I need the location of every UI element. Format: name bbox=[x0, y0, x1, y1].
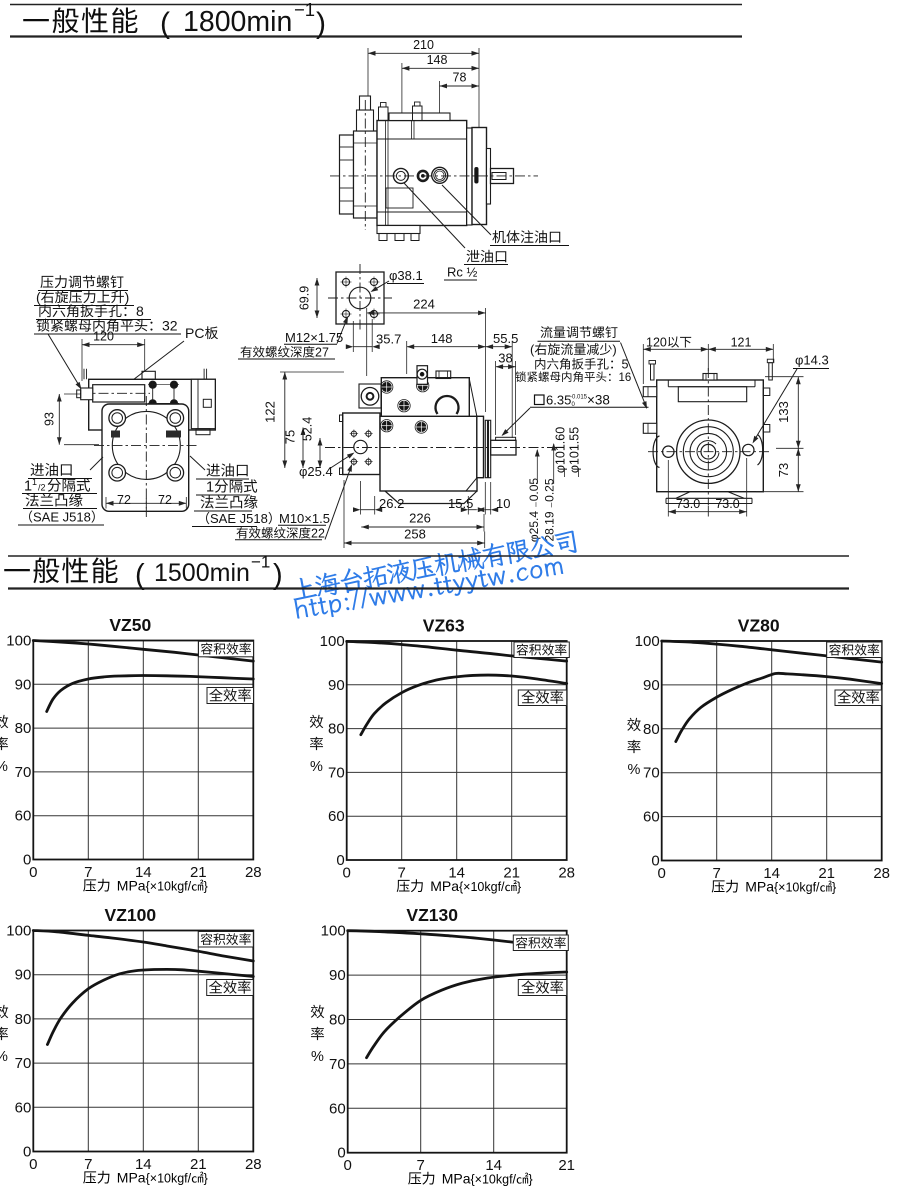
svg-text:75: 75 bbox=[283, 430, 298, 444]
svg-text:): ) bbox=[316, 7, 326, 40]
svg-text:容积效率: 容积效率 bbox=[516, 639, 567, 658]
svg-text:有效螺纹深度27: 有效螺纹深度27 bbox=[240, 342, 329, 361]
svg-text:90: 90 bbox=[329, 967, 346, 984]
svg-text:60: 60 bbox=[643, 809, 660, 826]
svg-text:70: 70 bbox=[328, 764, 345, 781]
svg-text:机体注油口: 机体注油口 bbox=[492, 227, 562, 247]
svg-text:60: 60 bbox=[15, 808, 32, 825]
svg-text:35.7: 35.7 bbox=[376, 332, 401, 347]
svg-text:率: 率 bbox=[310, 1023, 325, 1044]
svg-text:100: 100 bbox=[320, 633, 345, 650]
svg-text:全效率: 全效率 bbox=[209, 977, 252, 998]
svg-text:%: % bbox=[310, 759, 323, 775]
svg-text:148: 148 bbox=[431, 331, 453, 346]
svg-text:−1: −1 bbox=[294, 0, 315, 20]
svg-text:压力MPa{×10kgf/㎠}: 压力MPa{×10kgf/㎠} bbox=[83, 876, 208, 896]
svg-text:锁紧螺母内角平头：16: 锁紧螺母内角平头：16 bbox=[515, 369, 631, 385]
svg-text:效: 效 bbox=[309, 711, 324, 732]
svg-text:72: 72 bbox=[158, 493, 172, 507]
svg-text:100: 100 bbox=[635, 633, 660, 650]
svg-text:（SAE J518）: （SAE J518） bbox=[20, 507, 104, 526]
svg-text:120: 120 bbox=[93, 330, 114, 344]
svg-text:122: 122 bbox=[263, 401, 278, 423]
svg-text:80: 80 bbox=[15, 1011, 32, 1028]
svg-text:容积效率: 容积效率 bbox=[515, 932, 566, 951]
svg-text:226: 226 bbox=[409, 511, 431, 526]
svg-text:28: 28 bbox=[873, 865, 890, 882]
svg-text:28: 28 bbox=[558, 865, 575, 882]
svg-text:72: 72 bbox=[117, 493, 131, 507]
svg-text:15.5: 15.5 bbox=[448, 496, 473, 511]
svg-text:-0.015: -0.015 bbox=[570, 395, 588, 401]
svg-text:224: 224 bbox=[413, 297, 435, 312]
svg-text:): ) bbox=[273, 559, 283, 591]
svg-text:%: % bbox=[0, 1049, 8, 1065]
svg-text:0: 0 bbox=[29, 864, 37, 881]
svg-text:φ38.1: φ38.1 bbox=[389, 268, 423, 283]
svg-text:10: 10 bbox=[496, 496, 510, 511]
svg-text:容积效率: 容积效率 bbox=[200, 929, 251, 948]
svg-text:258: 258 bbox=[404, 527, 426, 542]
svg-text:0: 0 bbox=[343, 865, 351, 882]
svg-text:38: 38 bbox=[498, 351, 512, 366]
svg-text:压力MPa{×10kgf/㎠}: 压力MPa{×10kgf/㎠} bbox=[408, 1169, 533, 1189]
svg-text:%: % bbox=[0, 759, 8, 775]
svg-text:70: 70 bbox=[15, 1055, 32, 1072]
svg-text:(: ( bbox=[160, 7, 170, 40]
svg-text:全效率: 全效率 bbox=[837, 687, 880, 708]
svg-text:φ101.55: φ101.55 bbox=[568, 427, 582, 473]
svg-text:全效率: 全效率 bbox=[521, 687, 564, 708]
svg-text:100: 100 bbox=[321, 923, 346, 940]
svg-text:(: ( bbox=[135, 559, 145, 591]
svg-text:70: 70 bbox=[15, 764, 32, 781]
svg-text:1800min: 1800min bbox=[183, 6, 292, 38]
svg-text:70: 70 bbox=[643, 765, 660, 782]
svg-text:泄油口: 泄油口 bbox=[466, 247, 508, 267]
svg-text:60: 60 bbox=[329, 1100, 346, 1117]
svg-text:%: % bbox=[311, 1049, 324, 1065]
svg-text:×38: ×38 bbox=[587, 393, 610, 408]
svg-text:90: 90 bbox=[328, 677, 345, 694]
svg-text:VZ100: VZ100 bbox=[105, 905, 157, 925]
svg-text:率: 率 bbox=[0, 733, 9, 754]
svg-text:70: 70 bbox=[329, 1056, 346, 1073]
svg-text:Rc ½: Rc ½ bbox=[447, 265, 478, 280]
svg-text:效: 效 bbox=[0, 1001, 9, 1022]
svg-text:90: 90 bbox=[643, 677, 660, 694]
svg-text:60: 60 bbox=[15, 1099, 32, 1116]
svg-text:一般性能: 一般性能 bbox=[3, 550, 120, 590]
svg-text:φ14.3: φ14.3 bbox=[795, 353, 829, 368]
svg-text:压力MPa{×10kgf/㎠}: 压力MPa{×10kgf/㎠} bbox=[396, 876, 521, 896]
svg-text:80: 80 bbox=[329, 1012, 346, 1029]
svg-text:78: 78 bbox=[453, 71, 467, 85]
svg-text:80: 80 bbox=[15, 720, 32, 737]
svg-text:73.0: 73.0 bbox=[715, 497, 739, 511]
svg-text:1500min: 1500min bbox=[154, 559, 250, 587]
svg-text:1: 1 bbox=[32, 475, 37, 488]
svg-text:210: 210 bbox=[413, 38, 434, 52]
svg-text:容积效率: 容积效率 bbox=[829, 639, 880, 658]
svg-text:VZ63: VZ63 bbox=[423, 616, 465, 636]
svg-text:全效率: 全效率 bbox=[209, 685, 252, 706]
svg-text:率: 率 bbox=[0, 1023, 9, 1044]
svg-text:6.35: 6.35 bbox=[546, 393, 571, 408]
svg-text:26.2: 26.2 bbox=[379, 496, 404, 511]
svg-text:一般性能: 一般性能 bbox=[22, 0, 140, 40]
svg-text:90: 90 bbox=[15, 967, 32, 984]
svg-text:φ25.4: φ25.4 bbox=[299, 464, 333, 479]
svg-text:28: 28 bbox=[245, 864, 262, 881]
svg-text:90: 90 bbox=[15, 676, 32, 693]
svg-text:%: % bbox=[628, 762, 641, 778]
svg-text:60: 60 bbox=[328, 808, 345, 825]
svg-text:压力MPa{×10kgf/㎠}: 压力MPa{×10kgf/㎠} bbox=[711, 877, 836, 897]
svg-text:133: 133 bbox=[776, 401, 791, 423]
svg-text:80: 80 bbox=[328, 721, 345, 738]
svg-text:73: 73 bbox=[776, 463, 791, 477]
svg-text:21: 21 bbox=[558, 1157, 575, 1174]
svg-text:0: 0 bbox=[344, 1157, 352, 1174]
svg-text:率: 率 bbox=[627, 736, 642, 757]
svg-text:148: 148 bbox=[427, 53, 448, 67]
svg-text:效: 效 bbox=[0, 711, 9, 732]
svg-text:120以下: 120以下 bbox=[646, 332, 692, 351]
svg-text:121: 121 bbox=[731, 336, 752, 350]
svg-text:效: 效 bbox=[627, 714, 642, 735]
svg-text:0: 0 bbox=[29, 1156, 37, 1173]
svg-text:80: 80 bbox=[643, 721, 660, 738]
svg-text:率: 率 bbox=[309, 733, 324, 754]
svg-text:VZ130: VZ130 bbox=[406, 905, 458, 925]
svg-text:55.5: 55.5 bbox=[493, 331, 518, 346]
svg-text:有效螺纹深度22: 有效螺纹深度22 bbox=[236, 523, 325, 542]
svg-text:100: 100 bbox=[6, 923, 31, 940]
svg-text:压力MPa{×10kgf/㎠}: 压力MPa{×10kgf/㎠} bbox=[83, 1168, 208, 1188]
svg-text:73.0: 73.0 bbox=[676, 497, 700, 511]
svg-text:VZ50: VZ50 bbox=[109, 615, 151, 635]
svg-text:93: 93 bbox=[43, 412, 57, 426]
svg-text:0: 0 bbox=[658, 865, 666, 882]
svg-text:28: 28 bbox=[245, 1156, 262, 1173]
svg-text:69.9: 69.9 bbox=[298, 286, 312, 310]
svg-text:VZ80: VZ80 bbox=[738, 616, 780, 636]
svg-text:52.4: 52.4 bbox=[301, 417, 315, 441]
svg-text:容积效率: 容积效率 bbox=[200, 639, 251, 658]
svg-text:全效率: 全效率 bbox=[521, 977, 564, 998]
svg-text:100: 100 bbox=[6, 633, 31, 650]
svg-text:PC板: PC板 bbox=[185, 323, 218, 343]
svg-text:效: 效 bbox=[310, 1001, 325, 1022]
svg-text:−1: −1 bbox=[251, 553, 270, 572]
